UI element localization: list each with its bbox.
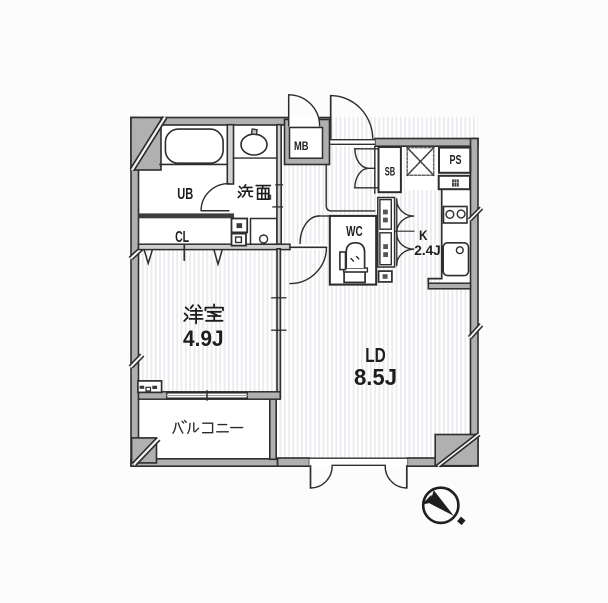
- svg-text:4.9J: 4.9J: [183, 326, 224, 351]
- svg-text:2.4J: 2.4J: [414, 242, 441, 258]
- svg-text:SB: SB: [385, 167, 396, 179]
- svg-text:MB: MB: [294, 141, 309, 153]
- svg-text:8.5J: 8.5J: [354, 364, 397, 390]
- svg-text:K: K: [419, 228, 428, 243]
- svg-text:WC: WC: [346, 224, 363, 240]
- svg-text:UB: UB: [177, 186, 193, 203]
- svg-text:CL: CL: [175, 229, 189, 246]
- svg-text:PS: PS: [450, 153, 462, 167]
